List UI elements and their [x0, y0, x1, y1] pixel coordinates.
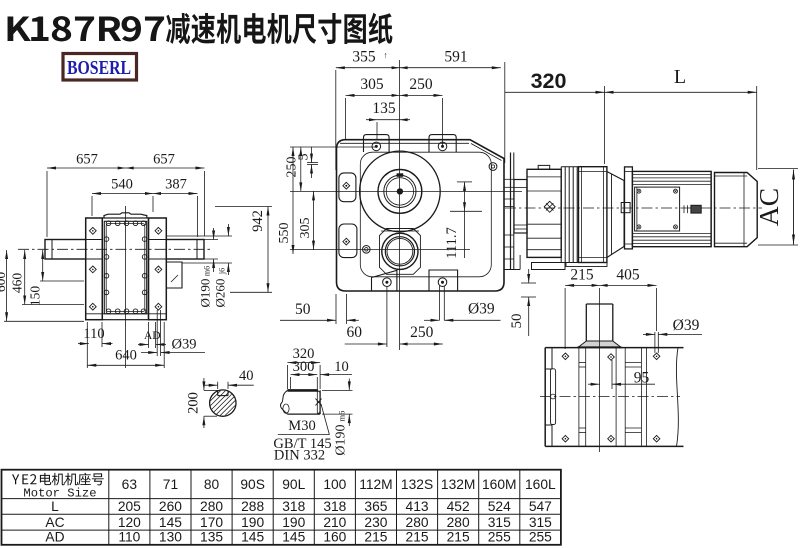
svg-text:305: 305: [360, 76, 384, 93]
svg-text:Ø39: Ø39: [172, 337, 197, 353]
svg-text:160L: 160L: [525, 477, 556, 492]
svg-text:Ø39: Ø39: [673, 317, 700, 334]
svg-text:524: 524: [488, 499, 511, 514]
svg-text:387: 387: [165, 177, 187, 193]
svg-text:250: 250: [409, 76, 433, 93]
svg-text:Ø260: Ø260: [213, 279, 228, 308]
svg-text:190: 190: [241, 515, 264, 530]
svg-text:90L: 90L: [282, 477, 305, 492]
svg-text:Motor Size: Motor Size: [23, 487, 96, 501]
svg-text:j6: j6: [218, 268, 227, 275]
svg-text:60: 60: [346, 324, 362, 341]
svg-text:AD: AD: [45, 530, 64, 545]
svg-text:135: 135: [200, 530, 223, 545]
svg-text:600: 600: [0, 272, 8, 293]
svg-text:AC: AC: [753, 188, 784, 226]
svg-text:80: 80: [204, 477, 220, 492]
svg-text:300: 300: [293, 359, 315, 375]
svg-text:405: 405: [616, 267, 640, 284]
svg-text:BOSERL: BOSERL: [67, 57, 131, 79]
svg-text:215: 215: [406, 530, 429, 545]
svg-text:63: 63: [122, 477, 138, 492]
svg-text:452: 452: [447, 499, 470, 514]
svg-text:40: 40: [239, 368, 254, 384]
svg-text:5: 5: [297, 154, 312, 161]
svg-text:280: 280: [406, 515, 429, 530]
svg-text:320: 320: [531, 69, 567, 93]
svg-text:657: 657: [153, 152, 175, 168]
svg-text:↑: ↑: [383, 50, 387, 60]
svg-text:591: 591: [444, 49, 467, 66]
svg-text:Ø190: Ø190: [334, 424, 349, 455]
svg-text:215: 215: [364, 530, 387, 545]
svg-text:657: 657: [76, 152, 98, 168]
svg-text:m6: m6: [337, 411, 347, 422]
svg-text:170: 170: [200, 515, 223, 530]
svg-text:100: 100: [323, 477, 346, 492]
svg-text:315: 315: [488, 515, 511, 530]
svg-text:132S: 132S: [401, 477, 433, 492]
svg-text:50: 50: [509, 314, 525, 329]
svg-text:10: 10: [334, 359, 349, 375]
svg-text:DIN 332: DIN 332: [274, 448, 325, 464]
svg-text:Ø39: Ø39: [468, 301, 495, 318]
svg-text:305: 305: [298, 218, 313, 239]
svg-text:190: 190: [282, 515, 305, 530]
svg-text:550: 550: [277, 223, 292, 244]
svg-text:200: 200: [186, 392, 202, 414]
svg-text:280: 280: [447, 515, 470, 530]
svg-text:255: 255: [529, 530, 552, 545]
svg-text:L: L: [51, 499, 59, 514]
svg-text:145: 145: [282, 530, 305, 545]
svg-text:260: 260: [159, 499, 182, 514]
svg-text:210: 210: [323, 515, 346, 530]
svg-text:132M: 132M: [441, 477, 476, 492]
svg-text:318: 318: [323, 499, 346, 514]
svg-text:150: 150: [28, 286, 43, 307]
svg-text:110: 110: [118, 530, 140, 545]
svg-text:L: L: [674, 66, 686, 88]
svg-text:AD: AD: [144, 330, 161, 342]
svg-text:365: 365: [364, 499, 387, 514]
svg-text:250: 250: [410, 324, 434, 341]
svg-text:90S: 90S: [240, 477, 265, 492]
svg-text:50: 50: [295, 301, 311, 318]
svg-text:111.7: 111.7: [444, 227, 460, 259]
svg-text:255: 255: [488, 530, 511, 545]
svg-text:160: 160: [323, 530, 346, 545]
svg-text:942: 942: [250, 210, 266, 232]
svg-text:Ø190: Ø190: [198, 279, 213, 308]
svg-text:640: 640: [115, 348, 137, 364]
svg-text:205: 205: [118, 499, 141, 514]
svg-text:413: 413: [406, 499, 429, 514]
svg-text:M30: M30: [288, 418, 315, 434]
svg-text:71: 71: [163, 477, 178, 492]
svg-text:AC: AC: [45, 515, 64, 530]
svg-text:230: 230: [364, 515, 387, 530]
svg-text:460: 460: [10, 273, 25, 294]
svg-text:95: 95: [634, 370, 650, 387]
svg-text:145: 145: [241, 530, 264, 545]
svg-text:318: 318: [282, 499, 305, 514]
svg-text:135: 135: [372, 100, 396, 117]
svg-text:145: 145: [159, 515, 182, 530]
svg-text:160M: 160M: [482, 477, 517, 492]
svg-text:315: 315: [529, 515, 552, 530]
svg-text:120: 120: [118, 515, 141, 530]
svg-text:215: 215: [570, 267, 594, 284]
svg-text:280: 280: [200, 499, 223, 514]
svg-text:288: 288: [241, 499, 264, 514]
svg-text:215: 215: [447, 530, 470, 545]
svg-text:540: 540: [111, 177, 133, 193]
svg-text:355: 355: [352, 49, 376, 66]
svg-text:130: 130: [159, 530, 182, 545]
svg-text:112M: 112M: [359, 477, 393, 492]
svg-text:547: 547: [529, 499, 552, 514]
svg-text:110: 110: [83, 326, 104, 342]
svg-text:m6: m6: [203, 266, 212, 276]
